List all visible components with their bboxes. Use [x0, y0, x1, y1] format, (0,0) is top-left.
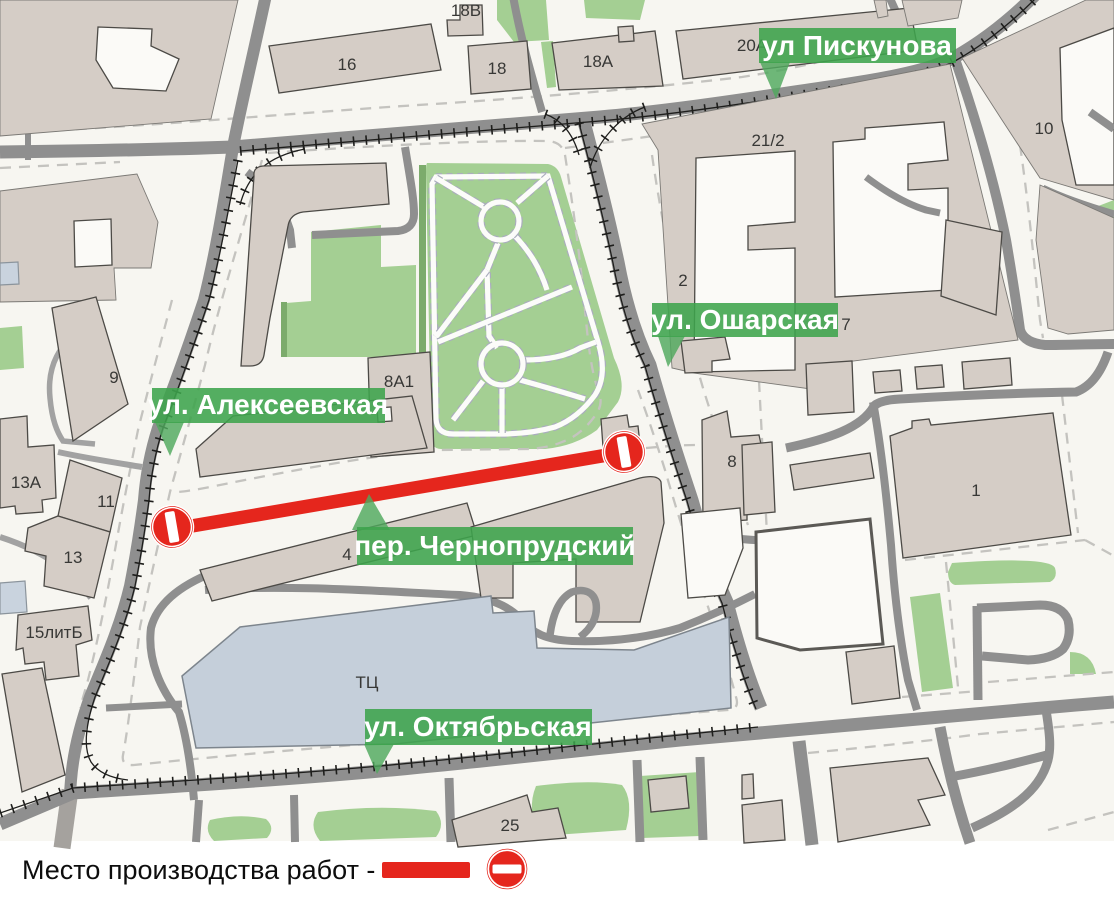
- svg-text:15литБ: 15литБ: [25, 623, 82, 642]
- svg-text:18: 18: [488, 59, 507, 78]
- svg-text:1: 1: [971, 481, 980, 500]
- svg-text:9: 9: [109, 368, 118, 387]
- svg-text:2: 2: [678, 271, 687, 290]
- svg-text:13: 13: [64, 548, 83, 567]
- svg-text:4: 4: [342, 545, 351, 564]
- svg-text:Место производства работ -: Место производства работ -: [22, 855, 375, 885]
- svg-text:10: 10: [1035, 119, 1054, 138]
- svg-text:ул. Ошарская: ул. Ошарская: [651, 304, 839, 335]
- svg-text:ул. Октябрьская: ул. Октябрьская: [364, 711, 592, 742]
- svg-text:8: 8: [727, 452, 736, 471]
- svg-text:25: 25: [501, 816, 520, 835]
- svg-text:ТЦ: ТЦ: [356, 673, 379, 692]
- svg-text:13А: 13А: [11, 473, 42, 492]
- svg-text:21/2: 21/2: [751, 131, 784, 150]
- svg-text:16: 16: [338, 55, 357, 74]
- svg-text:18А: 18А: [583, 52, 614, 71]
- svg-text:ул. Алексеевская: ул. Алексеевская: [148, 389, 388, 420]
- svg-text:18В: 18В: [451, 1, 481, 20]
- svg-text:8А1: 8А1: [384, 372, 414, 391]
- svg-text:пер. Чернопрудский: пер. Чернопрудский: [354, 530, 635, 561]
- svg-text:ул Пискунова: ул Пискунова: [762, 30, 952, 61]
- svg-text:7: 7: [841, 315, 850, 334]
- svg-text:11: 11: [97, 492, 115, 511]
